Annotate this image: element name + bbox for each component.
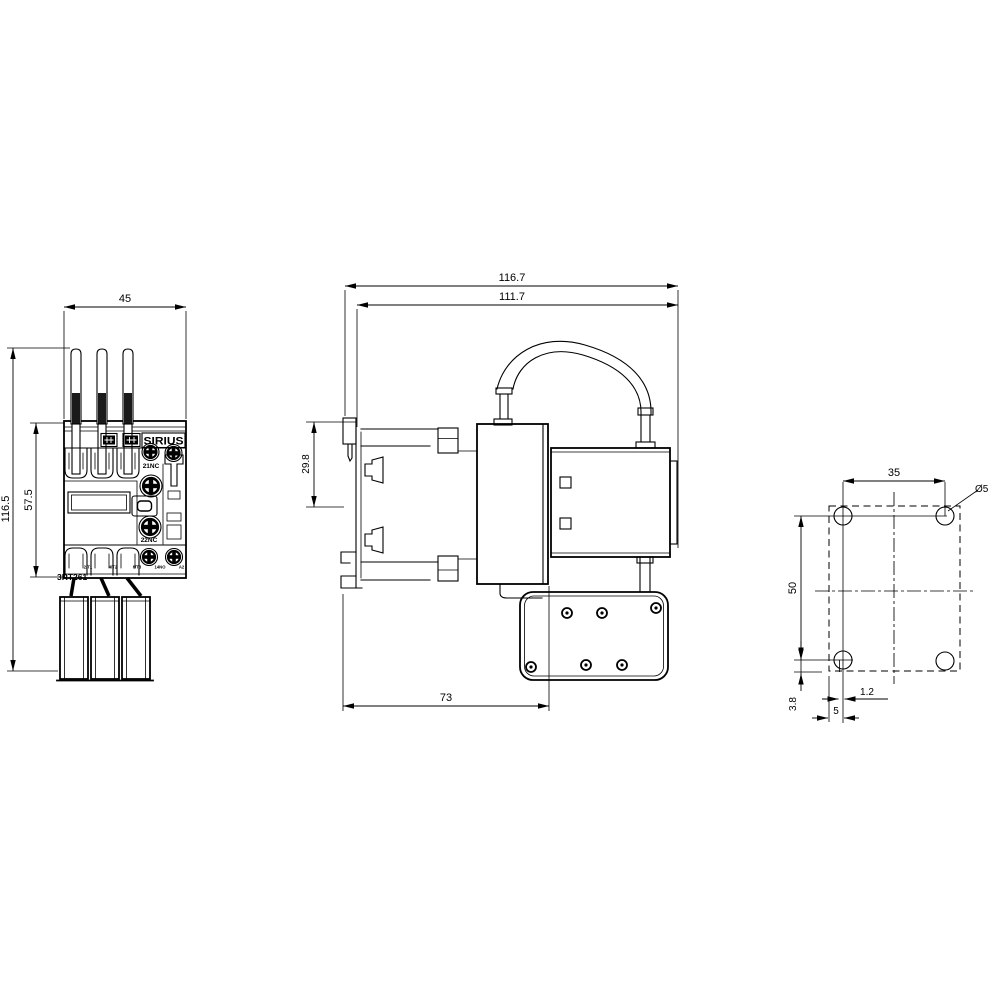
dim-side-total-depth: 116.7: [345, 272, 678, 548]
screw-hole: [617, 660, 627, 670]
screw-hole: [526, 662, 536, 672]
terminal-label-0: 2/T1: [84, 565, 93, 570]
main-pole-pin: [97, 349, 107, 474]
hole-diameter-label: Ø5: [975, 484, 989, 495]
front-view: 45 116.5 57.5: [0, 293, 186, 681]
terminal-clamp: [117, 548, 139, 575]
dim-116-7-label: 116.7: [499, 272, 526, 284]
dim-29-8-label: 29.8: [301, 454, 312, 474]
terminal-label-3: 14NO: [155, 565, 167, 570]
dim-hole-spacing-y: 50: [787, 516, 801, 660]
dim-111-7-label: 111.7: [499, 291, 525, 303]
dim-73-label: 73: [440, 692, 452, 704]
screw-hole: [562, 608, 572, 618]
dim-116-5-label: 116.5: [0, 496, 12, 523]
dim-57-5-label: 57.5: [23, 489, 35, 510]
technical-drawing: 45 116.5 57.5: [0, 0, 1000, 1000]
adjustment-screw: [139, 516, 161, 538]
capacitor-cell: [122, 597, 150, 679]
dim-side-inner-depth: 111.7: [357, 291, 678, 427]
dim-front-body-height: 57.5: [23, 423, 64, 577]
terminal-screw: [142, 444, 159, 461]
bottom-arm: [361, 556, 477, 581]
dim-45-label: 45: [119, 293, 131, 305]
din-rail-bracket: [341, 418, 362, 588]
screw-hole: [597, 608, 607, 618]
capacitor-cell: [60, 597, 88, 679]
reset-button: [132, 496, 157, 516]
dim-hole-spacing-x: 35: [843, 467, 945, 481]
capacitor-cell: [91, 597, 119, 679]
accessory-slots: [165, 455, 183, 539]
dim-slot-width: 1.2: [822, 687, 888, 699]
terminal-screw: [166, 549, 183, 566]
connection-cable: [494, 341, 655, 448]
screw-hole: [651, 603, 661, 613]
contactor-body-side: [477, 424, 548, 584]
dim-3-8-label: 3.8: [788, 697, 799, 711]
terminal-screw: [165, 445, 182, 462]
dim-5-label: 5: [833, 706, 839, 717]
dim-edge-to-hole: 5: [812, 706, 859, 718]
control-module: [551, 448, 677, 592]
terminal-screw: [141, 549, 158, 566]
screw-hole: [581, 660, 591, 670]
dim-1-2-label: 1.2: [860, 687, 874, 698]
dim-side-body-depth: 73: [343, 586, 549, 711]
hole-diameter-callout: Ø5: [948, 484, 989, 511]
dim-35-label: 35: [888, 467, 900, 479]
aux-contact-top-label: 21NC: [143, 463, 160, 470]
adjustment-screw: [140, 475, 162, 497]
dim-50-label: 50: [787, 582, 799, 594]
dim-bottom-offset: 3.8: [788, 641, 801, 711]
capacitor-block: [520, 592, 668, 680]
mounting-view: 35 50 3.8 1.2 5 Ø5: [787, 467, 989, 723]
dim-side-clip-section: 29.8: [301, 422, 356, 507]
main-pole-pin: [71, 349, 81, 474]
display-window: [68, 492, 130, 513]
terminal-clamp: [65, 548, 87, 575]
terminal-clamp: [91, 548, 113, 575]
drawing-canvas: 45 116.5 57.5: [0, 0, 1000, 1000]
aux-contact-bottom-label: 22NC: [141, 537, 158, 544]
main-pole-pin: [123, 349, 133, 474]
side-view: 116.7 111.7 29.8 73: [301, 272, 678, 711]
drill-pattern-outline: [829, 506, 960, 671]
terminal-label-2: 6/T3: [133, 565, 142, 570]
terminal-label-1: 4/T2: [109, 565, 118, 570]
mounting-lug: [365, 527, 383, 553]
mounting-hole: [936, 652, 954, 670]
mounting-lug: [365, 457, 383, 483]
top-arm: [361, 428, 477, 453]
terminal-label-4: A2: [179, 565, 185, 570]
